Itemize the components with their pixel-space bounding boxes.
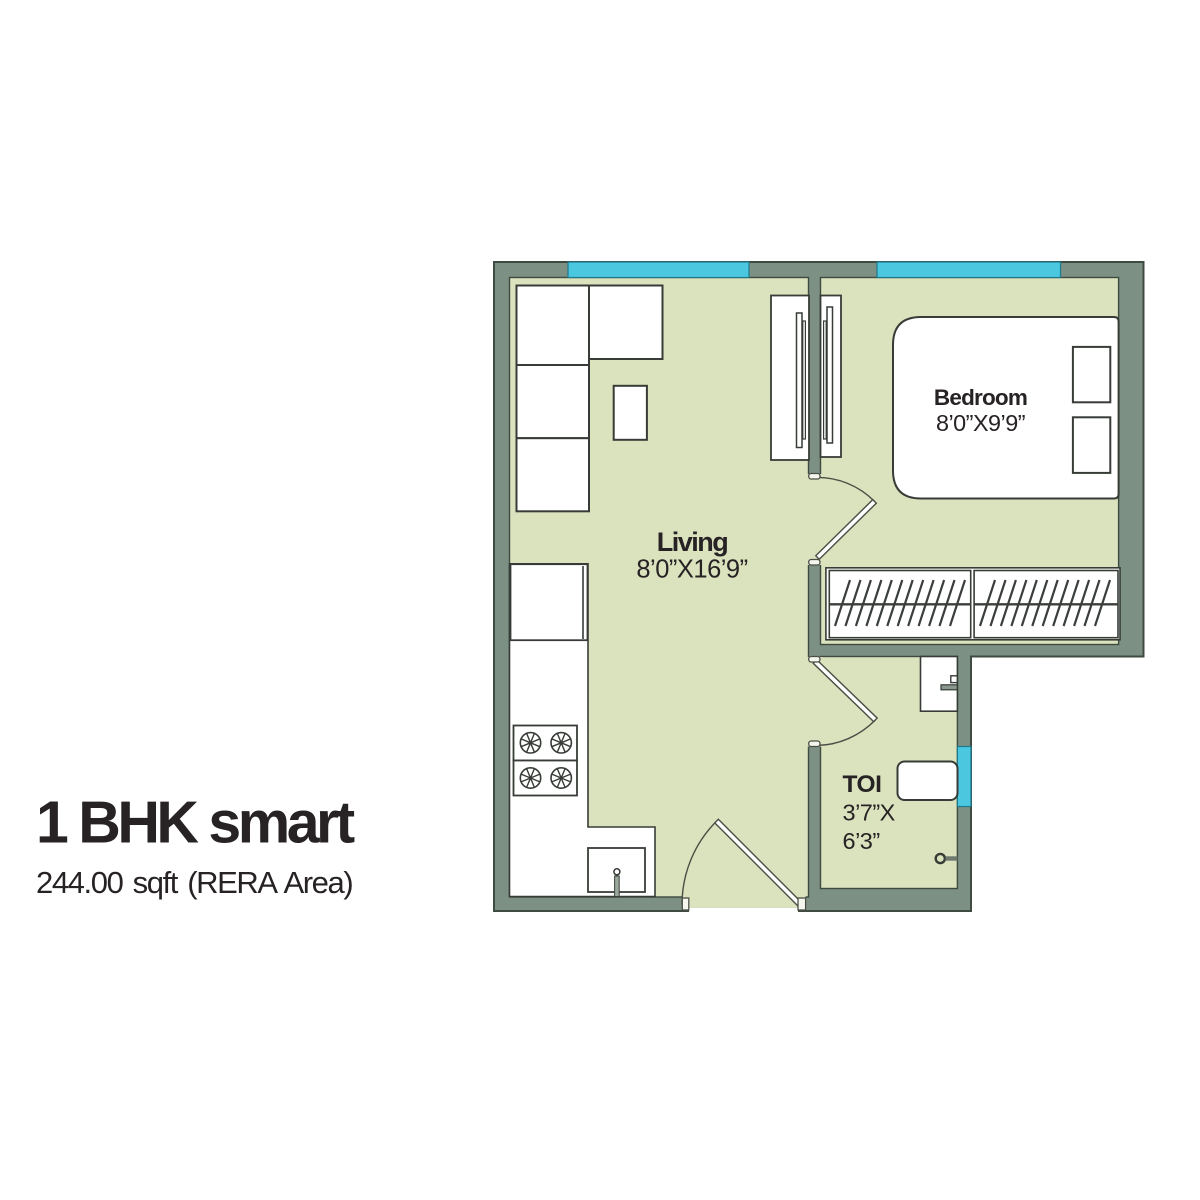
svg-text:TOI: TOI bbox=[843, 771, 882, 798]
svg-text:3’7”X: 3’7”X bbox=[843, 800, 896, 826]
svg-text:244.00 sqft (RERA Area): 244.00 sqft (RERA Area) bbox=[36, 865, 352, 900]
svg-text:8’0”X9’9”: 8’0”X9’9” bbox=[936, 410, 1025, 436]
svg-text:6’3”: 6’3” bbox=[843, 828, 880, 854]
svg-text:8’0”X16’9”: 8’0”X16’9” bbox=[636, 556, 747, 584]
svg-text:Living: Living bbox=[657, 527, 728, 557]
svg-text:1 BHK smart: 1 BHK smart bbox=[36, 790, 354, 856]
svg-text:Bedroom: Bedroom bbox=[934, 385, 1027, 410]
